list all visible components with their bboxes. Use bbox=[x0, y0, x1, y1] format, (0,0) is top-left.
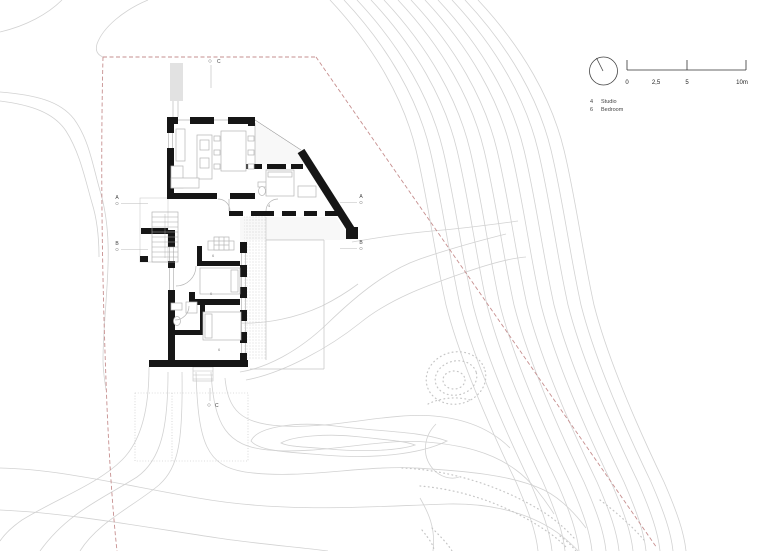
room-number-studio: 4 bbox=[268, 203, 271, 208]
scale-label-0: 0 bbox=[625, 80, 629, 86]
compass-needle bbox=[597, 58, 604, 71]
section-marker-c-top: C bbox=[209, 59, 221, 88]
section-marker-b-left: B bbox=[115, 241, 148, 251]
room-number-bedroom-3: 6 bbox=[218, 347, 221, 352]
scale-bar: 0 2,5 5 10m bbox=[625, 60, 748, 86]
legend-key-studio: 4 bbox=[590, 99, 593, 105]
site-plan-sheet: 4 6 6 6 A B A B C bbox=[0, 0, 780, 551]
legend-key-bedroom: 6 bbox=[590, 107, 593, 113]
svg-text:B: B bbox=[115, 241, 119, 247]
svg-text:A: A bbox=[359, 194, 363, 200]
section-marker-b-right: B bbox=[340, 240, 363, 250]
room-number-bedroom-1: 6 bbox=[212, 253, 215, 258]
scale-label-2-5: 2,5 bbox=[652, 80, 661, 86]
north-arrow-compass bbox=[590, 57, 618, 85]
svg-text:A: A bbox=[115, 195, 119, 201]
room-legend: 4 Studio 6 Bedroom bbox=[590, 99, 624, 113]
legend-label-studio: Studio bbox=[601, 99, 617, 105]
roof-terrace-hatch bbox=[255, 121, 303, 164]
staircase bbox=[152, 212, 178, 262]
svg-text:C: C bbox=[215, 403, 219, 409]
scale-label-5: 5 bbox=[685, 80, 689, 86]
section-marker-a-left: A bbox=[115, 195, 148, 205]
contour-lines bbox=[0, 0, 686, 551]
compass-circle bbox=[590, 57, 618, 85]
section-marker-c-bottom: C bbox=[208, 388, 219, 409]
vegetation-stipple bbox=[402, 346, 644, 551]
retaining-structure bbox=[170, 63, 183, 101]
building-plan: 4 6 6 6 bbox=[140, 117, 358, 367]
svg-text:B: B bbox=[359, 240, 363, 246]
section-marker-a-right: A bbox=[340, 194, 363, 204]
lower-level-outline bbox=[135, 393, 248, 461]
scale-label-10m: 10m bbox=[736, 80, 748, 86]
svg-text:C: C bbox=[217, 59, 221, 65]
site-plan-drawing: 4 6 6 6 A B A B C bbox=[0, 0, 780, 551]
deck-dotted bbox=[244, 216, 266, 360]
legend-label-bedroom: Bedroom bbox=[601, 107, 624, 113]
